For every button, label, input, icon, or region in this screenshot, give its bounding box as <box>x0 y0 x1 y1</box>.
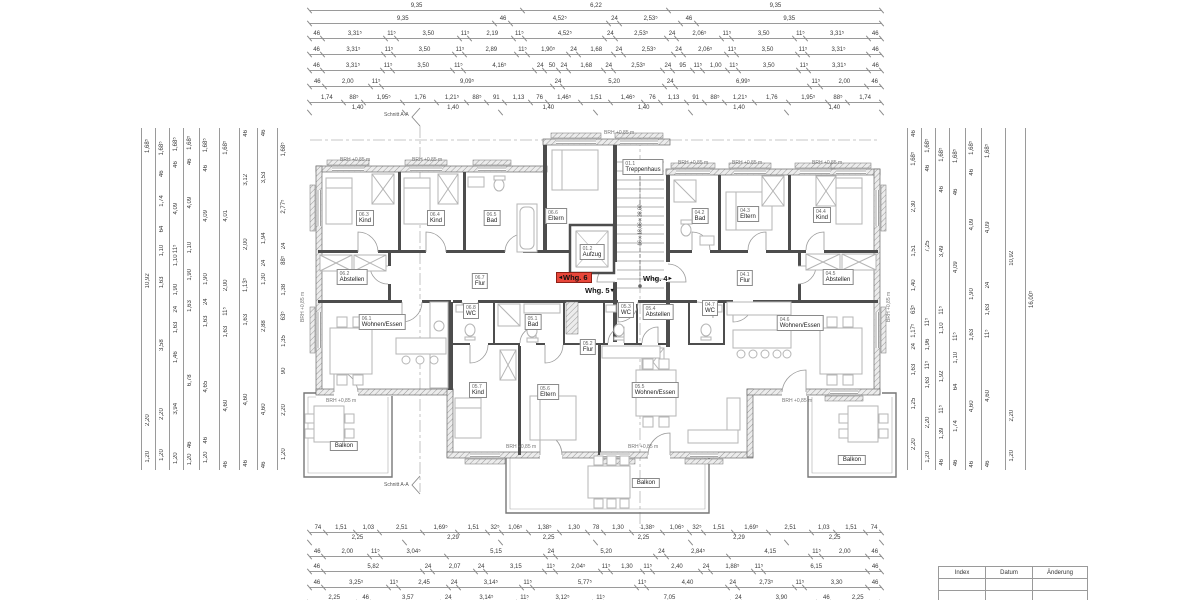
section-label-bottom: Schnitt A-A <box>384 482 409 488</box>
dim-chain-left-9: 1,68⁵2,77⁵2488⁵1,3863⁵1,35902,201,20 <box>277 128 290 470</box>
dim-chain-bottom-2: 2,252,292,252,252,292,25 <box>310 532 882 542</box>
dim-chain-right-2: 1,68⁵467,2511⁵1,9611⁵1,632,201,20 <box>921 128 934 470</box>
dim-chain-right-7: 10,922,201,20 <box>1005 128 1018 470</box>
stair-note: 16 x 18,06 x 28,00 <box>638 204 644 245</box>
revision-col-datum: Datum <box>986 567 1033 579</box>
dim-chain-bottom-3: 462,0011⁵3,04⁵5,15245,20242,84⁵4,1511⁵2,… <box>310 546 882 557</box>
dim-chain-top-5: 463,31⁵11⁵3,5011⁵4,16⁵2450241,68242,53⁵2… <box>310 60 882 71</box>
dim-chain-right-4: 1,68⁵464,0911⁵1,10641,7446 <box>949 128 962 470</box>
dim-chain-bottom-5: 463,25⁵11⁵2,45243,14⁵11⁵5,77⁵11⁵4,40242,… <box>310 577 882 588</box>
dim-chain-top-2: 9,35464,52⁵242,53⁵469,35 <box>310 13 882 24</box>
revision-col-index: Index <box>939 567 986 579</box>
revision-table: Index Datum Änderung <box>938 566 1088 600</box>
section-label-top: Schnitt A-A <box>384 112 409 118</box>
dim-chain-right-8: 16,00⁵ <box>1025 128 1038 470</box>
revision-col-aenderung: Änderung <box>1033 567 1088 579</box>
dim-chain-left-3: 1,68⁵464,0911⁵1,101,90241,631,463,941,20 <box>169 128 182 470</box>
dim-chain-right-6: 1,68⁵4,09241,6311⁵4,6046 <box>981 128 994 470</box>
dim-chain-left-5: 1,68⁵464,091,90241,634,65461,20 <box>199 128 212 470</box>
dim-chain-left-1: 1,68⁵10,922,201,20 <box>141 128 154 470</box>
revision-row <box>939 591 1088 600</box>
dim-chain-left-8: 463,531,94241,302,884,6046 <box>257 128 270 470</box>
dim-chain-left-4: 1,68⁵464,091,101,901,636,78461,20 <box>183 128 196 470</box>
shaft <box>566 302 578 334</box>
dim-chain-left-7: 463,122,001,13⁵1,634,6046 <box>239 128 252 470</box>
dim-chain-top-4: 463,31⁵11⁵3,5011⁵2,8911⁵1,90⁵241,68242,5… <box>310 44 882 55</box>
floorplan-canvas: 9,356,229,35 9,35464,52⁵242,53⁵469,35 46… <box>0 0 1200 600</box>
dim-chain-top-6: 462,0011⁵9,09⁵245,20246,99⁵11⁵2,0046 <box>310 76 882 87</box>
dim-chain-top-1: 9,356,229,35 <box>310 0 882 11</box>
dim-chain-top-3: 463,31⁵11⁵3,5011⁵2,1911⁵4,52⁵242,53⁵242,… <box>310 28 882 39</box>
dim-chain-left-2: 1,68⁵461,74641,101,633,582,201,20 <box>155 128 168 470</box>
dim-chain-top-8: 1,401,401,401,401,401,40 <box>310 102 882 112</box>
revision-row <box>939 579 1088 591</box>
dim-chain-left-6: 1,68⁵4,012,0011⁵1,634,6046 <box>219 128 232 470</box>
dim-chain-right-1: 461,68⁵2,301,511,4063⁵1,17⁵241,631,252,2… <box>907 128 920 470</box>
dim-chain-right-3: 1,68⁵463,4911⁵1,101,9211⁵1,3946 <box>935 128 948 470</box>
dim-chain-bottom-6: 2,25463,57243,14⁵11⁵3,12⁵11⁵7,05243,9046… <box>310 592 882 600</box>
dim-chain-bottom-4: 465,82242,07243,1511⁵2,04⁵11⁵1,3011⁵2,40… <box>310 561 882 572</box>
dim-chain-right-5: 1,68⁵464,091,901,634,6046 <box>965 128 978 470</box>
elevator <box>570 225 614 273</box>
